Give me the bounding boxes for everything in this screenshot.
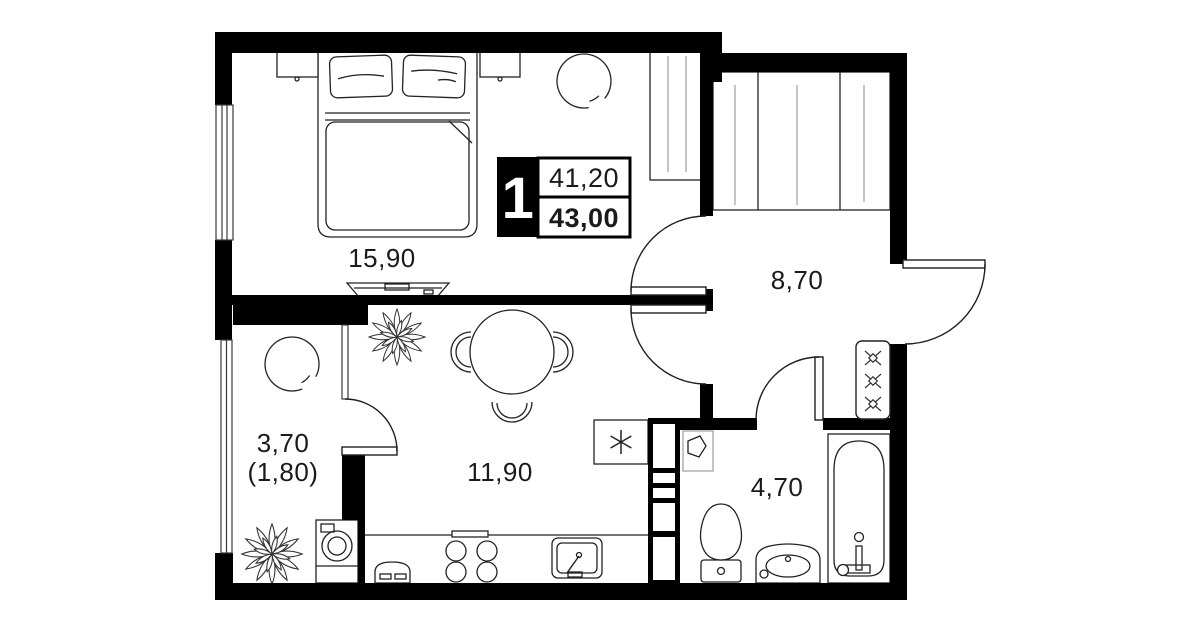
nightstand-left xyxy=(277,50,318,81)
floor-plan: 15,90 8,70 3,70 (1,80) 11,90 4,70 1 41,2… xyxy=(0,0,1201,630)
label-hallway-area: 8,70 xyxy=(771,265,824,295)
wardrobe-bedroom xyxy=(650,48,703,180)
stove xyxy=(446,531,497,582)
vent-shaft xyxy=(856,341,890,419)
door-entrance xyxy=(903,260,985,344)
pillow xyxy=(402,55,465,98)
badge-living-area: 41,20 xyxy=(549,163,619,193)
fridge xyxy=(594,420,648,464)
wall-segment xyxy=(713,53,907,72)
window-bedroom xyxy=(216,105,233,240)
badge-total-area: 43,00 xyxy=(549,203,619,233)
label-bathroom-area: 4,70 xyxy=(751,472,804,502)
label-bedroom-area: 15,90 xyxy=(348,243,416,273)
label-loggia-area: 3,70 xyxy=(257,428,310,458)
bread-bin xyxy=(375,562,410,583)
wall-segment xyxy=(215,583,907,600)
wall-segment xyxy=(232,295,713,305)
wardrobe-hallway xyxy=(713,72,890,210)
wall-segment xyxy=(890,53,907,264)
wall-segment xyxy=(342,455,365,520)
dining-table xyxy=(451,310,573,422)
armchair-loggia xyxy=(260,332,324,396)
glazing-loggia-partition xyxy=(342,325,348,399)
plant-kitchen xyxy=(369,309,425,365)
door-loggia xyxy=(342,399,397,455)
wall-segment xyxy=(358,520,365,583)
badge-rooms-count: 1 xyxy=(502,166,535,231)
door-bathroom xyxy=(756,357,823,420)
wall-segment xyxy=(700,53,713,216)
plant-loggia xyxy=(242,524,302,584)
dresser-bedroom xyxy=(347,283,449,297)
wall-segment xyxy=(233,305,368,325)
door-bedroom xyxy=(631,216,706,295)
bathroom-fixture xyxy=(683,431,713,471)
toilet xyxy=(701,504,742,582)
wall-segment xyxy=(890,344,907,600)
nightstand-right xyxy=(480,50,520,81)
wall-segment xyxy=(215,240,232,340)
door-kitchen xyxy=(631,305,706,384)
bathtub xyxy=(828,434,890,583)
bed xyxy=(318,50,477,237)
wall-segment xyxy=(215,32,232,105)
apartment-badge: 1 41,20 43,00 xyxy=(497,157,630,237)
armchair-bedroom xyxy=(557,54,611,108)
pillow xyxy=(329,55,392,98)
kitchen-sink xyxy=(552,538,602,578)
label-kitchen-area: 11,90 xyxy=(467,457,533,487)
wall-segment xyxy=(215,32,713,53)
wall-segment xyxy=(215,553,233,587)
floor-plan-drawing: 15,90 8,70 3,70 (1,80) 11,90 4,70 1 41,2… xyxy=(0,0,1201,630)
washing-machine xyxy=(316,520,358,583)
label-loggia-area-reduced: (1,80) xyxy=(248,457,319,487)
vanity-sink xyxy=(756,544,820,583)
wall-segment xyxy=(823,418,890,430)
glazing-loggia xyxy=(221,340,232,553)
